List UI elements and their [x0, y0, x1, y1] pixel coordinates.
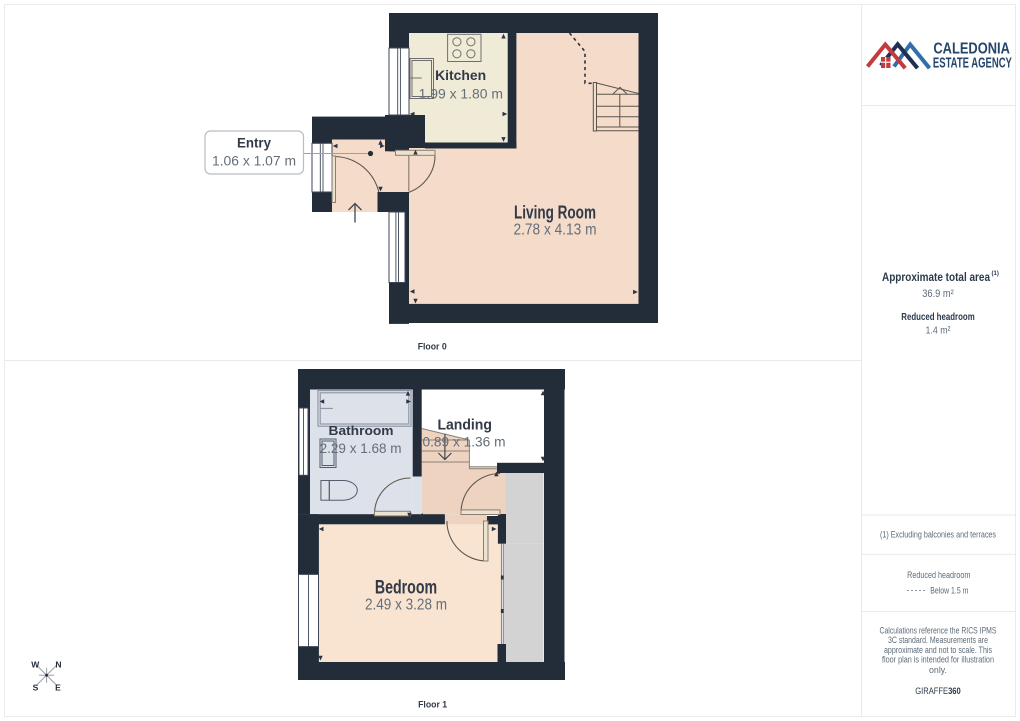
svg-text:2.29 x 1.68 m: 2.29 x 1.68 m — [320, 441, 402, 456]
svg-text:Bathroom: Bathroom — [329, 423, 394, 438]
svg-text:Entry: Entry — [237, 135, 271, 151]
svg-text:Landing: Landing — [437, 417, 492, 433]
svg-text:Living Room: Living Room — [514, 202, 596, 223]
svg-text:Floor 1: Floor 1 — [418, 700, 448, 711]
svg-text:2.78 x 4.13 m: 2.78 x 4.13 m — [514, 222, 597, 239]
svg-text:Floor 0: Floor 0 — [418, 342, 447, 353]
svg-text:Calculations reference the RIC: Calculations reference the RICS IPMS — [880, 625, 997, 635]
svg-text:(1): (1) — [992, 271, 999, 277]
svg-text:floor plan is intended for ill: floor plan is intended for illustration — [882, 655, 994, 665]
svg-text:Below 1.5 m: Below 1.5 m — [930, 585, 968, 596]
svg-text:N: N — [55, 659, 61, 669]
svg-text:1.4 m²: 1.4 m² — [926, 325, 951, 337]
svg-text:Approximate total area: Approximate total area — [882, 272, 991, 284]
svg-text:3C standard. Measurements are: 3C standard. Measurements are — [888, 635, 988, 645]
svg-text:0.89 x 1.36 m: 0.89 x 1.36 m — [423, 435, 506, 450]
svg-text:approximate and not to scale.: approximate and not to scale. This — [884, 645, 992, 655]
svg-text:Kitchen: Kitchen — [435, 67, 486, 83]
svg-text:W: W — [31, 659, 40, 669]
svg-text:Reduced headroom: Reduced headroom — [907, 570, 970, 581]
svg-text:Reduced headroom: Reduced headroom — [901, 312, 974, 323]
svg-text:(1) Excluding balconies and te: (1) Excluding balconies and terraces — [880, 530, 996, 540]
svg-text:GIRAFFE360: GIRAFFE360 — [915, 686, 961, 696]
svg-text:E: E — [55, 682, 61, 692]
svg-text:1.99 x 1.80 m: 1.99 x 1.80 m — [419, 87, 503, 102]
svg-text:1.06 x 1.07 m: 1.06 x 1.07 m — [212, 154, 296, 169]
svg-text:S: S — [33, 682, 39, 692]
svg-text:ESTATE AGENCY: ESTATE AGENCY — [933, 56, 1012, 72]
svg-text:36.9 m²: 36.9 m² — [922, 288, 954, 300]
svg-text:only.: only. — [929, 665, 947, 675]
svg-text:Bedroom: Bedroom — [375, 577, 437, 598]
svg-text:2.49 x 3.28 m: 2.49 x 3.28 m — [365, 597, 447, 614]
